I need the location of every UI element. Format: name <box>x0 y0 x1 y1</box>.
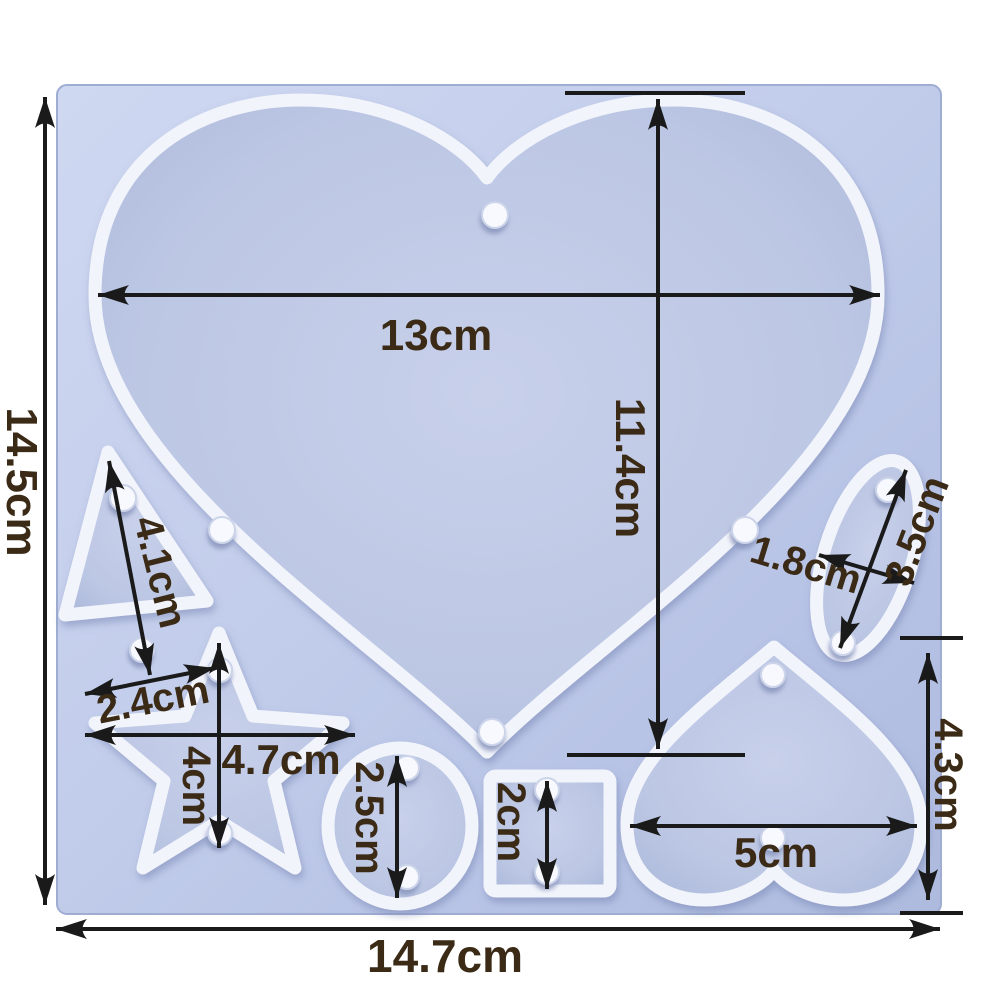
label-star-height: 4cm <box>176 746 216 826</box>
label-star-width: 4.7cm <box>221 739 340 781</box>
label-heart-width: 13cm <box>380 314 493 358</box>
peg <box>482 202 508 228</box>
peg <box>209 517 235 543</box>
label-square-size: 2cm <box>491 782 531 862</box>
label-circle-diameter: 2.5cm <box>349 761 389 874</box>
peg <box>761 663 785 687</box>
label-overall-height: 14.5cm <box>0 407 43 556</box>
peg <box>479 719 505 745</box>
mold-dimension-diagram: 14.5cm 14.7cm 13cm 11.4cm 4.1cm 2.4cm 4.… <box>0 0 1000 1000</box>
label-small-heart-height: 4.3cm <box>928 718 968 831</box>
label-small-heart-width: 5cm <box>734 832 818 874</box>
label-overall-width: 14.7cm <box>367 933 523 979</box>
label-heart-height: 11.4cm <box>609 398 651 538</box>
